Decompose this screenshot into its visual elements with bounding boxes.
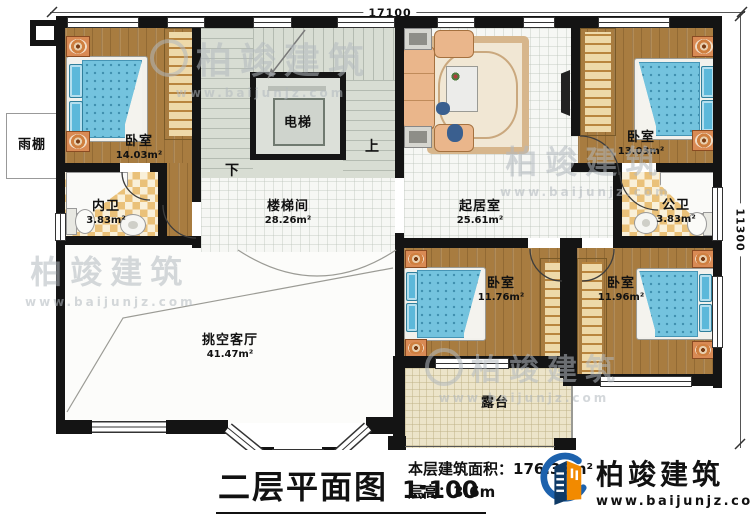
figure-icon <box>436 102 450 115</box>
wall-bathinner-right <box>158 163 167 245</box>
brand-logo-icon <box>540 452 588 510</box>
elevator-door-icon <box>268 86 326 91</box>
nightstand-icon <box>692 341 714 359</box>
wall-bathpublic-left <box>613 163 622 245</box>
window-right-bedroombr <box>712 276 723 348</box>
brand-url: www.baijunjz.com <box>596 494 750 509</box>
nightstand-icon <box>405 339 427 357</box>
wall-terrace-left <box>393 356 405 440</box>
coffee-table-icon <box>446 66 478 112</box>
stair-flight-left <box>201 28 253 178</box>
nightstand-icon <box>405 250 427 268</box>
armchair-icon <box>434 30 474 58</box>
room-label-bath-public: 公卫 3.83m² <box>656 199 695 225</box>
room-label-bedroom-tr: 卧室 13.03m² <box>618 131 664 157</box>
wardrobe-bedroom-tr <box>580 28 616 136</box>
title-bar: 二层平面图 1:100 本层建筑面积：176.35m² 层高：3.6m 柏竣建筑… <box>0 450 750 516</box>
window-top-3 <box>253 17 292 28</box>
pillow-icon <box>69 101 83 135</box>
wall-bathinner-bottom <box>56 236 201 245</box>
pillow-icon <box>406 272 418 301</box>
tv-icon <box>561 70 570 116</box>
nightstand-icon <box>66 36 90 57</box>
side-table-icon <box>404 28 432 50</box>
pillow-icon <box>699 304 712 332</box>
window-top-7 <box>598 17 670 28</box>
room-label-canopy: 雨棚 <box>18 139 46 154</box>
stair-flight-right <box>343 80 395 178</box>
mattress-bedroom-tl <box>82 60 142 138</box>
figure-icon <box>447 124 463 142</box>
mattress-bedroom-bl <box>417 270 483 338</box>
wall-bedroomtr-bottom-b <box>656 163 722 172</box>
wall-bathinner-top-a <box>56 163 120 172</box>
brand-name: 柏竣建筑 <box>596 453 724 493</box>
room-label-bedroom-tl: 卧室 14.03m² <box>116 135 162 161</box>
room-label-elevator: 电梯 <box>284 117 312 132</box>
room-label-living: 起居室 25.61m² <box>457 200 503 226</box>
floorplan-canvas: 17100 11300 <box>0 0 750 516</box>
chimney-block <box>30 20 60 46</box>
brand-logo-block: 柏竣建筑 www.baijunjz.com <box>540 452 750 510</box>
room-label-terrace: 露台 <box>481 397 509 412</box>
nightstand-icon <box>692 250 714 268</box>
brand-text: 柏竣建筑 www.baijunjz.com <box>596 453 750 509</box>
room-label-stairwell: 楼梯间 28.26m² <box>265 200 311 226</box>
plan-title: 二层平面图 <box>218 462 388 508</box>
stair-up-label: 上 <box>365 136 379 156</box>
room-label-bedroom-bl: 卧室 11.76m² <box>478 277 524 303</box>
pillow-icon <box>406 303 418 332</box>
wall-living-bottom-a <box>395 238 528 248</box>
sofa-main <box>403 46 435 130</box>
sink-icon <box>634 212 658 234</box>
wall-stair-living <box>395 16 404 178</box>
window-top-2 <box>167 17 205 28</box>
room-label-bath-inner: 内卫 3.83m² <box>86 200 125 226</box>
pillow-icon <box>69 64 83 98</box>
mattress-bedroom-br <box>638 271 698 337</box>
wall-bedroomtl-stair <box>192 16 201 202</box>
window-top-4 <box>337 17 395 28</box>
terrace-right-edge <box>571 386 573 438</box>
room-label-bedroom-br: 卧室 11.96m² <box>598 277 644 303</box>
window-right-bath <box>712 187 723 241</box>
wall-bedroombl-left <box>395 238 404 368</box>
side-table-icon <box>404 126 432 148</box>
wall-living-bedroomtr <box>571 16 580 136</box>
room-label-void-living: 挑空客厅 41.47m² <box>202 334 258 360</box>
floor-living-ext <box>571 172 613 238</box>
dimension-right-value: 11300 <box>734 203 747 256</box>
window-left-bath <box>55 213 66 241</box>
stair-down-label: 下 <box>225 160 239 180</box>
wall-bedrooms-mid <box>560 238 577 378</box>
window-top-5 <box>437 17 475 28</box>
window-bedroombl-bottom <box>435 358 509 369</box>
window-bedroombr-bottom <box>600 376 692 387</box>
pillow-icon <box>699 274 712 302</box>
window-top-6 <box>523 17 555 28</box>
nightstand-icon <box>66 131 90 152</box>
wall-bathpublic-bottom <box>613 236 722 248</box>
window-top-1 <box>67 17 139 28</box>
mattress-bedroom-tr <box>638 62 700 136</box>
